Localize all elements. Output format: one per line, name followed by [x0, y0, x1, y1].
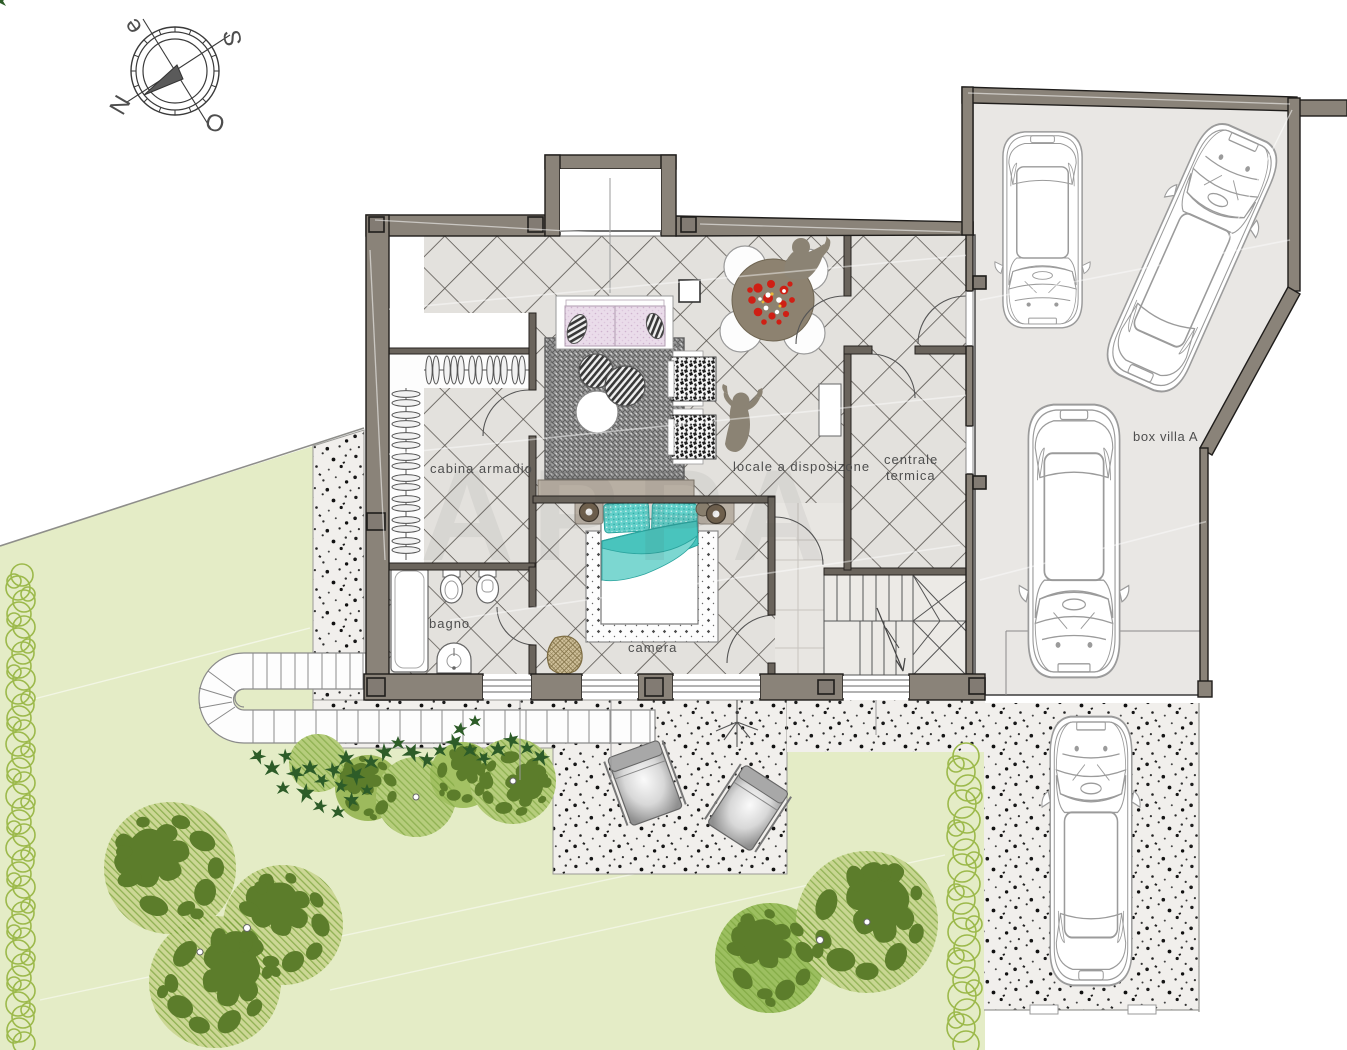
svg-text:centrale: centrale: [884, 452, 938, 467]
svg-text:termica: termica: [886, 468, 936, 483]
svg-text:locale a disposizone: locale a disposizone: [733, 459, 870, 474]
svg-text:cabina armadio: cabina armadio: [430, 461, 533, 476]
svg-text:box villa A: box villa A: [1133, 429, 1198, 444]
svg-text:camera: camera: [628, 640, 677, 655]
svg-text:bagno: bagno: [429, 616, 470, 631]
